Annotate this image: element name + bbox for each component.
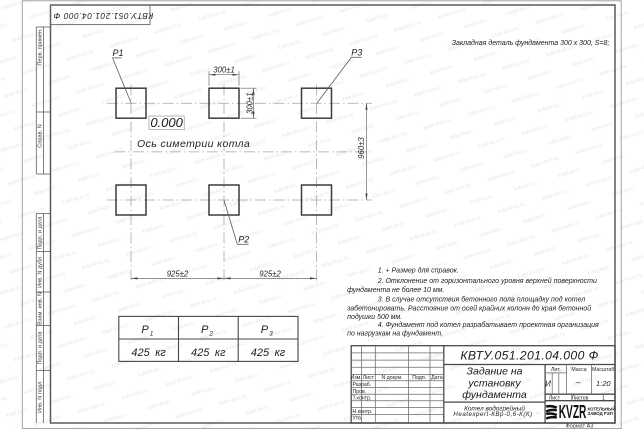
svg-text:Справ. N: Справ. N	[37, 124, 43, 147]
svg-text:КВТУ.051.201.04.000: КВТУ.051.201.04.000	[63, 11, 153, 21]
svg-text:Взам. инв. N: Взам. инв. N	[37, 292, 43, 325]
svg-text:ЗАВОД РЭП: ЗАВОД РЭП	[588, 411, 613, 416]
svg-text:установку: установку	[467, 378, 521, 390]
svg-text:фундамента не более 10 мм.: фундамента не более 10 мм.	[347, 286, 444, 294]
svg-text:Р1: Р1	[113, 48, 124, 58]
svg-text:Дата: Дата	[431, 375, 443, 381]
svg-text:425 кг: 425 кг	[251, 347, 286, 359]
svg-text:подушки 500 мм.: подушки 500 мм.	[347, 313, 402, 321]
svg-text:Подп.: Подп.	[412, 375, 426, 381]
svg-text:Р: Р	[261, 324, 269, 336]
svg-text:1: 1	[602, 396, 605, 402]
svg-text:1: 1	[150, 331, 154, 338]
svg-text:300±1: 300±1	[245, 92, 254, 114]
svg-text:И: И	[545, 380, 551, 389]
svg-text:Масштаб: Масштаб	[592, 367, 614, 373]
svg-text:Лист: Лист	[363, 375, 375, 381]
svg-text:Задание на: Задание на	[467, 365, 523, 377]
svg-text:925±2: 925±2	[167, 270, 189, 279]
svg-text:Масса: Масса	[571, 367, 586, 373]
svg-text:Пров.: Пров.	[353, 389, 367, 395]
svg-text:Т.контр.: Т.контр.	[353, 395, 372, 401]
svg-text:Р3: Р3	[351, 48, 362, 58]
svg-text:Ф: Ф	[53, 11, 60, 21]
svg-text:забетонировать. Расстояние от: забетонировать. Расстояние от осей крайн…	[346, 305, 591, 313]
svg-text:1:20: 1:20	[596, 379, 611, 388]
svg-text:Лист: Лист	[549, 396, 561, 402]
svg-text:2: 2	[208, 331, 213, 338]
svg-text:–: –	[576, 378, 581, 387]
svg-text:фундамента: фундамента	[462, 389, 527, 401]
svg-text:Heatexpert-КВр-0,6-К(К): Heatexpert-КВр-0,6-К(К)	[453, 411, 532, 418]
svg-text:0.000: 0.000	[150, 115, 183, 130]
svg-text:Инв. N дубл.: Инв. N дубл.	[37, 255, 43, 288]
svg-text:Разраб.: Разраб.	[353, 382, 372, 388]
svg-text:Закладная деталь фундамента 3: Закладная деталь фундамента 300 х 300, S…	[452, 39, 610, 47]
svg-text:300±1: 300±1	[213, 66, 235, 75]
svg-text:Инв. N подл.: Инв. N подл.	[37, 380, 43, 413]
svg-text:Р2: Р2	[238, 235, 249, 245]
svg-text:Р: Р	[201, 324, 209, 336]
svg-text:Лит.: Лит.	[551, 367, 561, 373]
svg-text:4. Фундамент под котел разраба: 4. Фундамент под котел разрабатывает про…	[378, 321, 599, 329]
svg-text:Н.контр.: Н.контр.	[353, 409, 373, 415]
svg-text:Ось симетрии котла: Ось симетрии котла	[137, 138, 250, 150]
svg-text:по нагрузкам на фундамент.: по нагрузкам на фундамент.	[347, 330, 443, 338]
svg-text:КВТУ.051.201.04.000 Ф: КВТУ.051.201.04.000 Ф	[460, 348, 598, 362]
svg-text:2. Отклонение от горизонтально: 2. Отклонение от горизонтального уровня …	[377, 277, 597, 285]
svg-text:925±2: 925±2	[259, 270, 281, 279]
svg-text:Утв.: Утв.	[353, 416, 363, 422]
svg-text:Перв. примен.: Перв. примен.	[37, 28, 43, 66]
svg-text:Подп. и дата: Подп. и дата	[37, 331, 43, 365]
svg-text:425 кг: 425 кг	[131, 347, 166, 359]
svg-text:1. + Размер для справок.: 1. + Размер для справок.	[378, 266, 459, 274]
svg-text:Формат А3: Формат А3	[566, 424, 594, 430]
svg-text:3: 3	[269, 331, 273, 338]
svg-text:Подп. и дата: Подп. и дата	[37, 216, 43, 250]
svg-text:Листов: Листов	[572, 396, 589, 402]
svg-text:3. В случае отсутствия бетонно: 3. В случае отсутствия бетонного пола пл…	[378, 296, 586, 304]
svg-text:960±3: 960±3	[357, 137, 366, 159]
svg-text:KVZR: KVZR	[559, 402, 587, 423]
svg-text:Изм.: Изм.	[351, 375, 362, 381]
svg-text:Р: Р	[141, 324, 149, 336]
svg-text:425 кг: 425 кг	[191, 347, 226, 359]
svg-text:N докум.: N докум.	[382, 375, 403, 381]
